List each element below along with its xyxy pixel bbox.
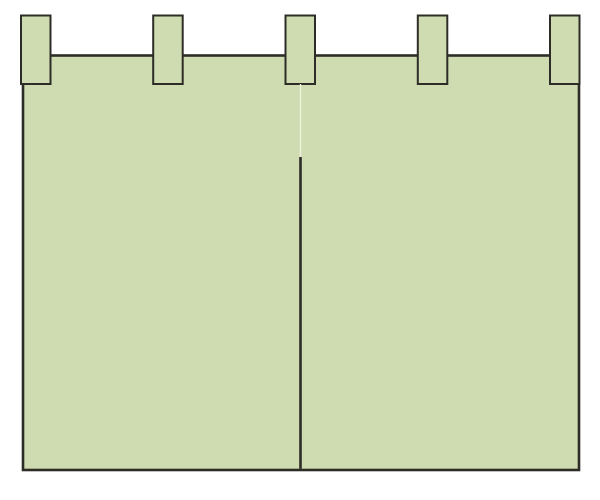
curtain-tab-4 [418, 16, 448, 85]
curtain-tab-3 [286, 16, 316, 85]
noren-svg [0, 0, 600, 500]
curtain-layers [21, 16, 580, 471]
curtain-tab-2 [153, 16, 183, 85]
noren-curtain-illustration [0, 0, 600, 500]
curtain-tab-5 [550, 16, 580, 85]
curtain-tab-1 [21, 16, 51, 85]
